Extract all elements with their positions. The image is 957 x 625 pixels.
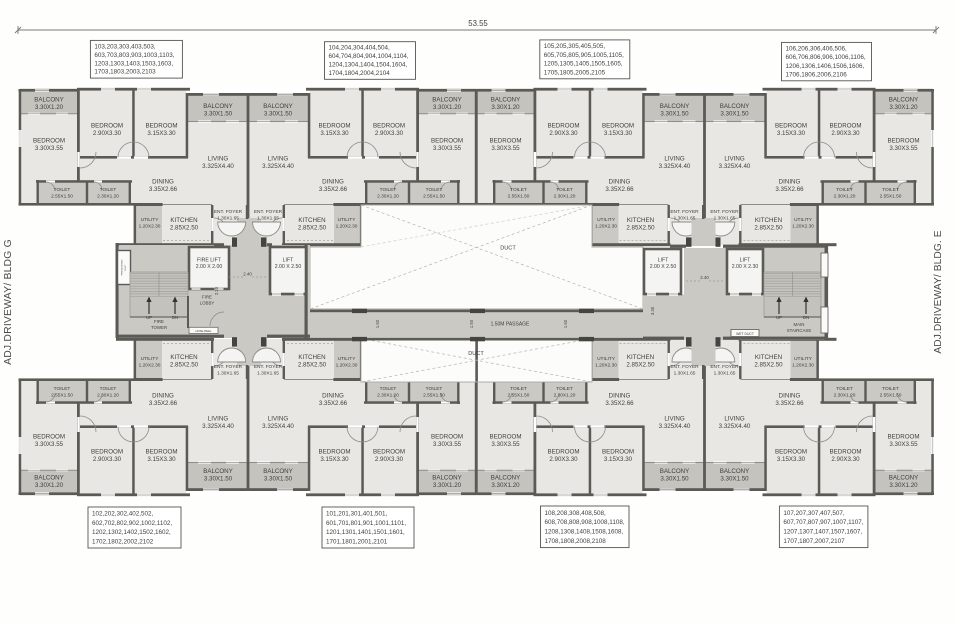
svg-text:3.30X1.50: 3.30X1.50 (264, 475, 293, 482)
svg-text:3.30X1.20: 3.30X1.20 (35, 104, 64, 111)
svg-text:BEDROOM: BEDROOM (319, 122, 351, 129)
svg-text:TOILET: TOILET (426, 187, 443, 193)
svg-text:ENT. FOYER: ENT. FOYER (254, 364, 283, 370)
svg-text:1.50M PASSAGE: 1.50M PASSAGE (491, 322, 530, 328)
svg-text:1203,1303,1403,1503,1603,: 1203,1303,1403,1503,1603, (94, 60, 173, 67)
svg-text:3.30X3.55: 3.30X3.55 (35, 441, 64, 448)
svg-text:3.35X2.66: 3.35X2.66 (149, 400, 178, 407)
svg-text:UTILITY: UTILITY (597, 356, 616, 362)
svg-text:LIVING: LIVING (268, 155, 288, 162)
svg-text:1702,1802,2002,2102: 1702,1802,2002,2102 (92, 538, 154, 545)
svg-text:BEDROOM: BEDROOM (33, 137, 65, 144)
svg-text:TOILET: TOILET (100, 386, 117, 392)
svg-text:BEDROOM: BEDROOM (146, 448, 178, 455)
svg-text:LIFT: LIFT (283, 257, 294, 263)
svg-text:2.90X3.30: 2.90X3.30 (93, 130, 122, 137)
svg-text:608,708,808,908,1008,1108,: 608,708,808,908,1008,1108, (545, 519, 625, 526)
svg-text:BALCONY: BALCONY (34, 474, 64, 481)
svg-text:FIRE: FIRE (154, 319, 164, 324)
svg-text:TOILET: TOILET (380, 187, 397, 193)
svg-text:101,201,301,401,501,: 101,201,301,401,501, (326, 511, 388, 518)
svg-text:3.15X3.30: 3.15X3.30 (777, 456, 806, 463)
svg-text:3.35X2.66: 3.35X2.66 (605, 186, 634, 193)
svg-text:ADJ.DRIVEWAY/ BLDG G: ADJ.DRIVEWAY/ BLDG G (3, 239, 14, 365)
svg-text:2.90X3.30: 2.90X3.30 (549, 456, 578, 463)
svg-text:BALCONY: BALCONY (720, 103, 750, 110)
svg-text:BALCONY: BALCONY (432, 474, 462, 481)
svg-text:TOILET: TOILET (556, 187, 573, 193)
svg-text:LIVING: LIVING (724, 415, 744, 422)
svg-text:3.35: 3.35 (650, 306, 655, 315)
svg-text:3.30X1.50: 3.30X1.50 (204, 110, 233, 117)
svg-text:3.30X3.55: 3.30X3.55 (889, 145, 918, 152)
svg-text:BEDROOM: BEDROOM (490, 433, 522, 440)
svg-text:2.90X3.30: 2.90X3.30 (831, 130, 860, 137)
svg-text:3.15X3.30: 3.15X3.30 (604, 130, 633, 137)
svg-text:604,704,804,904,1004,1104,: 604,704,804,904,1004,1104, (329, 53, 409, 60)
svg-text:3.30X1.50: 3.30X1.50 (264, 110, 293, 117)
svg-text:1.30X1.65: 1.30X1.65 (217, 370, 239, 376)
svg-text:DINING: DINING (779, 178, 801, 185)
svg-text:KITCHEN: KITCHEN (627, 217, 654, 224)
svg-text:3.30X1.20: 3.30X1.20 (889, 104, 918, 111)
svg-text:DINING: DINING (152, 178, 174, 185)
svg-text:607,707,807,907,1007,1107,: 607,707,807,907,1007,1107, (783, 519, 863, 526)
svg-text:BEDROOM: BEDROOM (830, 122, 862, 129)
svg-text:TOILET: TOILET (426, 386, 443, 392)
svg-text:3.15X3.30: 3.15X3.30 (604, 456, 633, 463)
svg-text:MAIN: MAIN (794, 322, 805, 327)
svg-text:3.30X3.55: 3.30X3.55 (433, 441, 462, 448)
svg-text:2.30X1.20: 2.30X1.20 (554, 193, 576, 199)
svg-text:2.85X2.50: 2.85X2.50 (626, 224, 655, 231)
svg-text:KITCHEN: KITCHEN (298, 217, 325, 224)
svg-text:DINING: DINING (609, 178, 631, 185)
svg-text:KITCHEN: KITCHEN (755, 354, 782, 361)
svg-text:3.15X3.30: 3.15X3.30 (147, 130, 176, 137)
svg-text:TOILET: TOILET (380, 386, 397, 392)
svg-text:2.30X1.20: 2.30X1.20 (97, 392, 119, 398)
svg-text:BALCONY: BALCONY (34, 96, 64, 103)
svg-text:ENT. FOYER: ENT. FOYER (214, 209, 243, 215)
svg-text:UTILITY: UTILITY (338, 356, 357, 362)
svg-text:2.40: 2.40 (700, 275, 709, 280)
svg-text:3.30X1.20: 3.30X1.20 (889, 482, 918, 489)
svg-text:BEDROOM: BEDROOM (373, 122, 405, 129)
svg-text:BEDROOM: BEDROOM (602, 122, 634, 129)
svg-text:TOILET: TOILET (510, 187, 527, 193)
svg-text:BEDROOM: BEDROOM (91, 122, 123, 129)
svg-text:2.20: 2.20 (214, 286, 219, 295)
svg-text:ENT. FOYER: ENT. FOYER (670, 209, 699, 215)
svg-text:3.325X4.40: 3.325X4.40 (719, 423, 751, 430)
svg-text:3.325X4.40: 3.325X4.40 (659, 423, 691, 430)
svg-text:1204,1304,1404,1504,1604,: 1204,1304,1404,1504,1604, (329, 62, 408, 69)
svg-text:BEDROOM: BEDROOM (775, 448, 807, 455)
svg-text:BEDROOM: BEDROOM (33, 433, 65, 440)
svg-text:2.90X3.30: 2.90X3.30 (375, 130, 404, 137)
svg-text:2.90X3.30: 2.90X3.30 (375, 456, 404, 463)
svg-text:2.55X1.50: 2.55X1.50 (423, 193, 445, 199)
svg-text:53.55: 53.55 (468, 19, 488, 28)
svg-text:1.20X2.30: 1.20X2.30 (336, 362, 358, 368)
svg-text:107,207,307,407,507,: 107,207,307,407,507, (783, 510, 845, 517)
svg-text:BEDROOM: BEDROOM (146, 122, 178, 129)
svg-text:3.35X2.66: 3.35X2.66 (149, 186, 178, 193)
svg-text:3.30X3.55: 3.30X3.55 (491, 145, 520, 152)
svg-text:BALCONY: BALCONY (263, 103, 293, 110)
svg-text:2.30X1.20: 2.30X1.20 (97, 193, 119, 199)
svg-text:3.35X2.66: 3.35X2.66 (319, 400, 348, 407)
svg-text:102,202,302,402,502,: 102,202,302,402,502, (92, 511, 154, 518)
svg-text:LIVING: LIVING (724, 155, 744, 162)
svg-text:3.30X1.20: 3.30X1.20 (35, 482, 64, 489)
svg-text:HOSE REEL: HOSE REEL (195, 329, 211, 333)
svg-text:1206,1306,1406,1506,1606,: 1206,1306,1406,1506,1606, (786, 63, 865, 70)
svg-text:1.20X2.30: 1.20X2.30 (595, 362, 617, 368)
svg-text:LIFT: LIFT (658, 257, 669, 263)
svg-text:BEDROOM: BEDROOM (91, 448, 123, 455)
svg-text:FIRE LIFT: FIRE LIFT (197, 257, 222, 263)
svg-text:STAIRCASE: STAIRCASE (787, 328, 812, 333)
svg-text:106,206,306,406,506,: 106,206,306,406,506, (786, 46, 848, 53)
svg-text:3.30X1.50: 3.30X1.50 (660, 475, 689, 482)
svg-text:2.85X2.50: 2.85X2.50 (626, 361, 655, 368)
svg-text:3.35X2.66: 3.35X2.66 (605, 400, 634, 407)
svg-text:DN: DN (803, 315, 809, 320)
svg-text:BEDROOM: BEDROOM (830, 448, 862, 455)
svg-text:KITCHEN: KITCHEN (298, 354, 325, 361)
svg-text:1.50: 1.50 (563, 319, 568, 328)
svg-text:LIVING: LIVING (208, 415, 228, 422)
svg-text:DUCT: DUCT (468, 351, 484, 357)
svg-text:108,208,308,408,508,: 108,208,308,408,508, (545, 510, 607, 517)
svg-text:1.20X2.30: 1.20X2.30 (336, 223, 358, 229)
svg-text:1706,1806,2006,2106: 1706,1806,2006,2106 (786, 71, 848, 78)
svg-text:2.90X3.30: 2.90X3.30 (831, 456, 860, 463)
svg-text:2.55X1.50: 2.55X1.50 (880, 193, 902, 199)
svg-text:ADJ.DRIVEWAY/ BLDG. E: ADJ.DRIVEWAY/ BLDG. E (933, 230, 944, 353)
svg-text:LOBBY: LOBBY (200, 300, 215, 305)
svg-text:1.20X2.30: 1.20X2.30 (792, 362, 814, 368)
svg-text:1208,1308,1408,1508,1608,: 1208,1308,1408,1508,1608, (545, 529, 624, 536)
svg-text:BEDROOM: BEDROOM (431, 433, 463, 440)
svg-text:1.20X2.30: 1.20X2.30 (595, 223, 617, 229)
svg-text:BALCONY: BALCONY (491, 96, 521, 103)
svg-text:BEDROOM: BEDROOM (319, 448, 351, 455)
svg-text:3.30X1.20: 3.30X1.20 (433, 482, 462, 489)
svg-text:3.30X1.20: 3.30X1.20 (491, 482, 520, 489)
svg-text:FIRE: FIRE (202, 295, 212, 300)
svg-text:1.50: 1.50 (375, 319, 380, 328)
svg-text:LIVING: LIVING (208, 155, 228, 162)
svg-text:1.30X1.65: 1.30X1.65 (257, 215, 279, 221)
svg-text:UTILITY: UTILITY (338, 217, 357, 223)
svg-text:2.85X2.50: 2.85X2.50 (754, 361, 783, 368)
svg-text:2.55X1.50: 2.55X1.50 (880, 392, 902, 398)
svg-text:3.15X3.30: 3.15X3.30 (147, 456, 176, 463)
svg-text:2.85X2.50: 2.85X2.50 (298, 224, 327, 231)
svg-text:2.90X3.30: 2.90X3.30 (93, 456, 122, 463)
svg-text:2.00 X 2.30: 2.00 X 2.30 (732, 264, 759, 270)
svg-text:TOILET: TOILET (556, 386, 573, 392)
svg-text:2.55X1.50: 2.55X1.50 (508, 193, 530, 199)
svg-text:UTILITY: UTILITY (794, 356, 813, 362)
svg-text:LIVING: LIVING (664, 415, 684, 422)
svg-text:1705,1805,2005,2105: 1705,1805,2005,2105 (544, 69, 606, 76)
svg-text:DINING: DINING (322, 178, 344, 185)
svg-text:BEDROOM: BEDROOM (888, 137, 920, 144)
svg-text:PRESSURIZED: PRESSURIZED (122, 259, 124, 275)
svg-text:ENT. FOYER: ENT. FOYER (254, 209, 283, 215)
svg-text:3.30X3.55: 3.30X3.55 (491, 441, 520, 448)
svg-text:BALCONY: BALCONY (203, 468, 233, 475)
svg-text:3.30X1.50: 3.30X1.50 (720, 475, 749, 482)
svg-text:UP: UP (776, 315, 782, 320)
svg-text:ENT. FOYER: ENT. FOYER (670, 364, 699, 370)
svg-text:TOILET: TOILET (836, 187, 853, 193)
svg-text:3.15X3.30: 3.15X3.30 (777, 130, 806, 137)
svg-text:TOWER: TOWER (151, 325, 167, 330)
svg-text:TOILET: TOILET (510, 386, 527, 392)
svg-text:BALCONY: BALCONY (203, 103, 233, 110)
svg-text:1205,1305,1405,1505,1605,: 1205,1305,1405,1505,1605, (544, 61, 623, 68)
svg-text:LIVING: LIVING (268, 415, 288, 422)
svg-text:1708,1808,2008,2108: 1708,1808,2008,2108 (545, 538, 607, 545)
svg-text:2.55X1.50: 2.55X1.50 (51, 392, 73, 398)
svg-text:2.40: 2.40 (243, 272, 252, 277)
svg-text:DINING: DINING (152, 392, 174, 399)
svg-text:2.55X1.50: 2.55X1.50 (423, 392, 445, 398)
svg-text:3.35X2.66: 3.35X2.66 (319, 186, 348, 193)
svg-text:2.90X3.30: 2.90X3.30 (549, 130, 578, 137)
svg-text:602,702,802,902,1002,1102,: 602,702,802,902,1002,1102, (92, 520, 172, 527)
svg-text:1707,1807,2007,2107: 1707,1807,2007,2107 (783, 538, 845, 545)
svg-text:3.325X4.40: 3.325X4.40 (719, 163, 751, 170)
svg-text:BALCONY: BALCONY (889, 474, 919, 481)
svg-text:1703,1803,2003,2103: 1703,1803,2003,2103 (94, 69, 156, 76)
svg-text:1.30X1.65: 1.30X1.65 (257, 370, 279, 376)
svg-text:1202,1302,1402,1502,1602,: 1202,1302,1402,1502,1602, (92, 529, 171, 536)
svg-text:3.30X1.50: 3.30X1.50 (720, 110, 749, 117)
svg-text:TOILET: TOILET (54, 386, 71, 392)
svg-text:BALCONY: BALCONY (491, 474, 521, 481)
svg-text:BALCONY: BALCONY (889, 96, 919, 103)
svg-text:ENT. FOYER: ENT. FOYER (710, 209, 739, 215)
svg-text:UTILITY: UTILITY (141, 356, 160, 362)
svg-text:3.30X3.55: 3.30X3.55 (433, 145, 462, 152)
svg-text:DINING: DINING (322, 392, 344, 399)
svg-text:1.20X2.30: 1.20X2.30 (139, 223, 161, 229)
svg-text:UTILITY: UTILITY (597, 217, 616, 223)
svg-text:3.325X4.40: 3.325X4.40 (202, 163, 234, 170)
svg-text:2.30X1.20: 2.30X1.20 (554, 392, 576, 398)
svg-text:1201,1301,1401,1501,1601,: 1201,1301,1401,1501,1601, (326, 529, 405, 536)
svg-text:BEDROOM: BEDROOM (888, 433, 920, 440)
svg-text:603,703,803,903,1003,1103,: 603,703,803,903,1003,1103, (94, 52, 174, 59)
svg-text:KITCHEN: KITCHEN (170, 217, 197, 224)
svg-text:3.325X4.40: 3.325X4.40 (202, 423, 234, 430)
svg-text:UTILITY: UTILITY (141, 217, 160, 223)
svg-text:1.30X1.65: 1.30X1.65 (217, 215, 239, 221)
svg-text:BEDROOM: BEDROOM (548, 122, 580, 129)
svg-text:1704,1804,2004,2104: 1704,1804,2004,2104 (329, 70, 391, 77)
svg-text:1.30X1.65: 1.30X1.65 (714, 370, 736, 376)
svg-text:BALCONY: BALCONY (263, 468, 293, 475)
svg-text:TOILET: TOILET (882, 187, 899, 193)
svg-text:2.85X2.50: 2.85X2.50 (170, 224, 199, 231)
svg-text:DN: DN (172, 315, 178, 320)
svg-text:1.30X1.65: 1.30X1.65 (714, 215, 736, 221)
svg-text:3.30X1.20: 3.30X1.20 (491, 104, 520, 111)
svg-text:1.20X2.30: 1.20X2.30 (792, 223, 814, 229)
svg-text:BEDROOM: BEDROOM (373, 448, 405, 455)
svg-text:BEDROOM: BEDROOM (490, 137, 522, 144)
svg-text:3.325X4.40: 3.325X4.40 (262, 163, 294, 170)
svg-text:BALCONY: BALCONY (432, 96, 462, 103)
svg-text:3.35X2.66: 3.35X2.66 (775, 400, 804, 407)
svg-text:2.85X2.50: 2.85X2.50 (170, 361, 199, 368)
svg-text:3.15X3.30: 3.15X3.30 (320, 130, 349, 137)
svg-text:3.15X3.30: 3.15X3.30 (320, 456, 349, 463)
svg-text:601,701,801,901,1001,1101,: 601,701,801,901,1001,1101, (326, 520, 406, 527)
svg-text:2.00 X 2.50: 2.00 X 2.50 (650, 264, 677, 270)
svg-text:WET DUCT: WET DUCT (736, 332, 754, 336)
svg-text:605,705,805,905,1005,1105,: 605,705,805,905,1005,1105, (544, 52, 624, 59)
svg-text:2.30X1.20: 2.30X1.20 (834, 392, 856, 398)
svg-text:LIVING: LIVING (664, 155, 684, 162)
svg-text:2.30X1.20: 2.30X1.20 (377, 193, 399, 199)
svg-text:UTILITY: UTILITY (794, 217, 813, 223)
svg-text:DINING: DINING (779, 392, 801, 399)
svg-text:2.55X1.50: 2.55X1.50 (508, 392, 530, 398)
svg-text:1.30X1.65: 1.30X1.65 (674, 215, 696, 221)
svg-text:KITCHEN: KITCHEN (627, 354, 654, 361)
svg-text:BALCONY: BALCONY (660, 468, 690, 475)
svg-text:KITCHEN: KITCHEN (755, 217, 782, 224)
svg-text:DUCT: DUCT (125, 264, 127, 271)
svg-text:3.30X1.50: 3.30X1.50 (660, 110, 689, 117)
svg-text:105,205,305,405,505,: 105,205,305,405,505, (544, 43, 606, 50)
svg-text:2.00 X 2.50: 2.00 X 2.50 (275, 264, 302, 270)
svg-text:3.30X3.55: 3.30X3.55 (35, 145, 64, 152)
svg-text:TOILET: TOILET (54, 187, 71, 193)
svg-text:LIFT: LIFT (740, 257, 751, 263)
svg-text:KITCHEN: KITCHEN (170, 354, 197, 361)
svg-text:3.325X4.40: 3.325X4.40 (659, 163, 691, 170)
svg-text:2.55X1.50: 2.55X1.50 (51, 193, 73, 199)
svg-text:TOILET: TOILET (100, 187, 117, 193)
svg-text:BEDROOM: BEDROOM (775, 122, 807, 129)
svg-text:DUCT: DUCT (500, 246, 516, 252)
svg-text:1207,1307,1407,1507,1607,: 1207,1307,1407,1507,1607, (783, 529, 862, 536)
svg-text:104,204,304,404,504,: 104,204,304,404,504, (329, 45, 391, 52)
svg-text:BALCONY: BALCONY (660, 103, 690, 110)
svg-text:606,706,806,906,1006,1106,: 606,706,806,906,1006,1106, (786, 54, 866, 61)
svg-text:BEDROOM: BEDROOM (602, 448, 634, 455)
svg-text:UP: UP (146, 315, 152, 320)
svg-text:BEDROOM: BEDROOM (431, 137, 463, 144)
svg-text:3.30X1.20: 3.30X1.20 (433, 104, 462, 111)
svg-text:3.325X4.40: 3.325X4.40 (262, 423, 294, 430)
svg-text:3.30X1.50: 3.30X1.50 (204, 475, 233, 482)
svg-text:DINING: DINING (609, 392, 631, 399)
svg-text:ENT. FOYER: ENT. FOYER (214, 364, 243, 370)
svg-text:BEDROOM: BEDROOM (548, 448, 580, 455)
svg-text:2.30X1.20: 2.30X1.20 (834, 193, 856, 199)
svg-text:BALCONY: BALCONY (720, 468, 750, 475)
svg-text:1.30X1.65: 1.30X1.65 (674, 370, 696, 376)
svg-text:1701,1801,2001,2101: 1701,1801,2001,2101 (326, 538, 388, 545)
svg-text:TOILET: TOILET (882, 386, 899, 392)
svg-text:2.85X2.50: 2.85X2.50 (754, 224, 783, 231)
svg-text:1.20X2.30: 1.20X2.30 (139, 362, 161, 368)
svg-text:1.50: 1.50 (469, 319, 474, 328)
svg-text:TOILET: TOILET (836, 386, 853, 392)
svg-text:2.30X1.20: 2.30X1.20 (377, 392, 399, 398)
svg-text:2.85X2.50: 2.85X2.50 (298, 361, 327, 368)
svg-text:3.35X2.66: 3.35X2.66 (775, 186, 804, 193)
svg-text:3.30X3.55: 3.30X3.55 (889, 441, 918, 448)
svg-text:ENT. FOYER: ENT. FOYER (710, 364, 739, 370)
svg-text:2.00 X 2.00: 2.00 X 2.00 (196, 264, 223, 270)
svg-text:103,203,303,403,503,: 103,203,303,403,503, (94, 43, 156, 50)
